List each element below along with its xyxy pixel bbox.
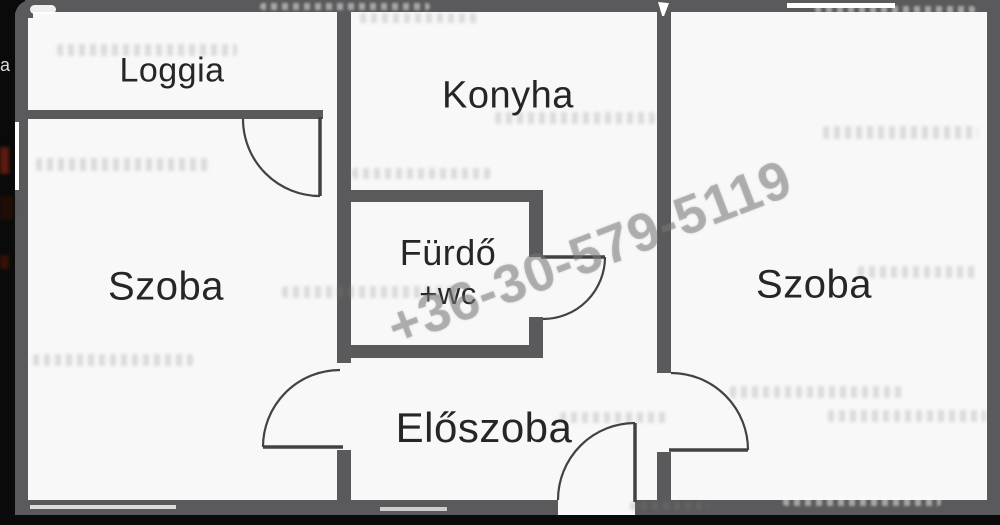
floor-plan-canvas: Loggia Szoba Konyha Fürdő +wc Előszoba S…	[0, 0, 1000, 525]
wall-left	[15, 0, 28, 515]
room-label-szoba-left: Szoba	[108, 265, 224, 310]
faint-watermark	[560, 412, 670, 423]
faint-watermark	[36, 158, 211, 171]
window-line-bottom-mid	[380, 507, 447, 511]
left-edge-text-fragment: la	[0, 55, 10, 76]
door-opening-szoba-left	[337, 363, 351, 450]
faint-watermark-on-wall	[260, 3, 430, 10]
left-edge-red-blob-2	[0, 255, 9, 269]
faint-watermark	[823, 126, 978, 139]
faint-watermark	[630, 502, 710, 510]
wall-loggia-divider	[15, 110, 323, 119]
room-label-loggia: Loggia	[119, 52, 224, 91]
faint-watermark	[858, 266, 978, 278]
faint-watermark	[828, 410, 986, 422]
faint-watermark-on-wall	[815, 6, 975, 13]
window-line-bottom-left	[30, 505, 176, 509]
wall-bathroom-top	[337, 190, 543, 202]
faint-watermark-on-wall	[783, 497, 941, 506]
faint-watermark	[352, 168, 492, 179]
room-label-konyha: Konyha	[442, 75, 574, 118]
room-label-szoba-right: Szoba	[756, 263, 872, 308]
room-label-eloszoba: Előszoba	[396, 404, 573, 452]
left-edge-red-blob	[0, 147, 9, 174]
door-opening-entrance	[558, 500, 635, 515]
faint-watermark	[730, 386, 905, 398]
faint-watermark	[360, 13, 480, 23]
corner-chip	[30, 5, 56, 14]
faint-watermark	[33, 354, 193, 366]
window-line-left	[15, 122, 19, 190]
wall-right	[987, 0, 1000, 515]
wall-bathroom-bottom	[337, 345, 543, 358]
left-edge-dark-blob	[0, 196, 13, 220]
